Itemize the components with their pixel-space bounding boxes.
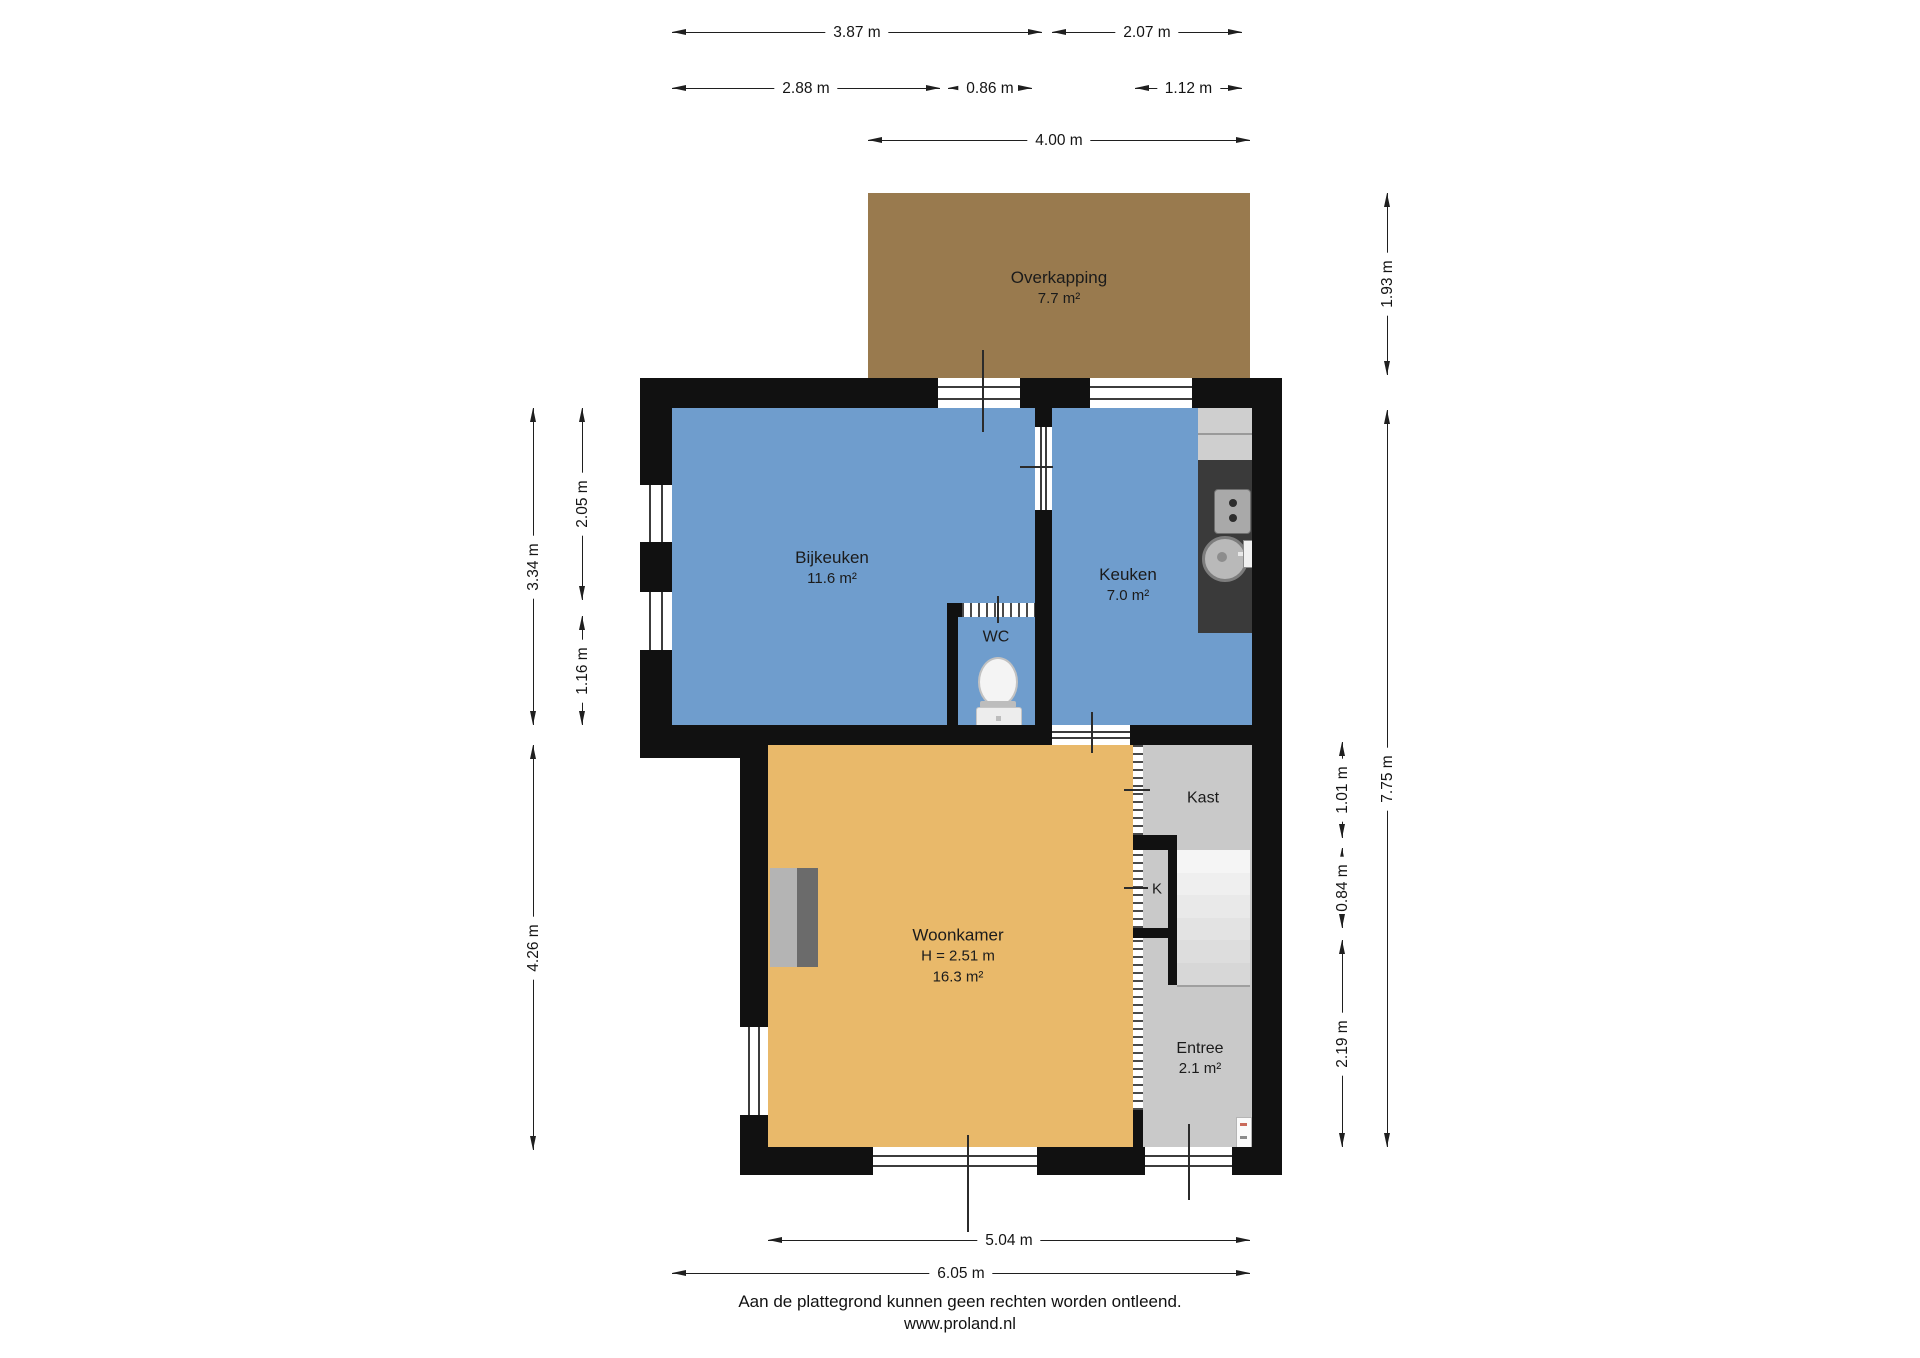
label-bijkeuken: Bijkeuken 11.6 m²	[795, 547, 869, 589]
wc-name: WC	[983, 627, 1010, 648]
disclaimer-text: Aan de plattegrond kunnen geen rechten w…	[0, 1292, 1920, 1312]
kast-name: Kast	[1187, 788, 1219, 809]
back-door-line	[982, 350, 984, 432]
entree-area: 2.1 m²	[1176, 1059, 1223, 1079]
dimension-d6: 4.00 m	[868, 140, 1250, 141]
label-entree: Entree 2.1 m²	[1176, 1039, 1223, 1079]
keuken-name: Keuken	[1099, 564, 1157, 585]
wall-left-upper	[640, 378, 672, 758]
dimension-d2: 2.07 m	[1052, 32, 1242, 33]
front-door-line	[1188, 1124, 1190, 1200]
keuken-area: 7.0 m²	[1099, 585, 1157, 606]
entree-partition-panel	[1133, 938, 1143, 1110]
website-link: www.proland.nl	[0, 1315, 1920, 1334]
bijkeuken-name: Bijkeuken	[795, 547, 869, 568]
wall-wc-top-stub	[947, 603, 962, 617]
dimension-label: 1.12 m	[1157, 80, 1220, 98]
back-door-opening	[938, 378, 1020, 408]
stair-tread	[1177, 873, 1250, 898]
k-door-line	[1124, 887, 1148, 889]
wc-door-line	[997, 596, 999, 623]
dimension-d17: 6.05 m	[672, 1273, 1250, 1274]
dimension-d5: 1.12 m	[1135, 88, 1242, 89]
bijkeuken-left-window-1	[640, 485, 672, 542]
kitchen-counter-top-icon	[1198, 408, 1252, 462]
dimension-d1: 3.87 m	[672, 32, 1042, 33]
stair-tread	[1177, 850, 1250, 875]
dimension-label: 4.00 m	[1027, 132, 1090, 150]
dimension-label: 0.86 m	[958, 80, 1021, 98]
woonkamer-bottom-window	[873, 1147, 1037, 1175]
stair-tread	[1177, 895, 1250, 920]
bijkeuken-area: 11.6 m²	[795, 568, 869, 589]
dimension-label: 7.75 m	[1379, 747, 1397, 810]
fireplace-front-icon	[797, 868, 818, 967]
wall-right	[1252, 378, 1282, 1175]
dimension-d15: 2.19 m	[1342, 940, 1343, 1147]
label-k: K	[1152, 879, 1162, 900]
bijkeuken-left-window-2	[640, 592, 672, 650]
dimension-d4: 0.86 m	[948, 88, 1032, 89]
dimension-label: 4.26 m	[525, 916, 543, 979]
doorbell-icon	[1236, 1117, 1252, 1149]
label-overkapping: Overkapping 7.7 m²	[1011, 267, 1107, 309]
stair-tread	[1177, 918, 1250, 943]
glass-door-bijkeuken-keuken	[1035, 427, 1052, 510]
floorplan-canvas: Overkapping 7.7 m² Bijkeuken 11.6 m² Keu…	[0, 0, 1920, 1358]
dimension-d16: 5.04 m	[768, 1240, 1250, 1241]
dimension-label: 2.05 m	[574, 472, 592, 535]
label-wc: WC	[983, 627, 1010, 648]
wall-entree-left-stub	[1133, 1110, 1143, 1147]
kast-door-line	[1124, 789, 1150, 791]
staircase	[1177, 850, 1250, 985]
stove-icon	[1214, 489, 1251, 534]
glass-door-line	[1020, 466, 1053, 468]
stair-tread	[1177, 940, 1250, 965]
garden-door-line	[967, 1135, 969, 1232]
label-woonkamer: Woonkamer H = 2.51 m 16.3 m²	[912, 925, 1003, 988]
label-kast: Kast	[1187, 788, 1219, 809]
entree-name: Entree	[1176, 1039, 1223, 1059]
wall-stairs-side	[1168, 850, 1177, 985]
dimension-d3: 2.88 m	[672, 88, 940, 89]
dimension-d7: 3.34 m	[533, 408, 534, 725]
dimension-d10: 4.26 m	[533, 745, 534, 1150]
fireplace-icon	[770, 868, 797, 967]
overkapping-name: Overkapping	[1011, 267, 1107, 288]
dimension-label: 2.19 m	[1334, 1012, 1352, 1075]
dimension-label: 3.34 m	[525, 535, 543, 598]
dimension-label: 2.07 m	[1115, 24, 1178, 42]
dimension-label: 6.05 m	[929, 1265, 992, 1283]
woonkamer-height: H = 2.51 m	[912, 946, 1003, 967]
wall-k-entree-divider	[1133, 928, 1168, 938]
woonkamer-name: Woonkamer	[912, 925, 1003, 946]
dimension-d8: 2.05 m	[582, 408, 583, 600]
dimension-label: 1.93 m	[1379, 252, 1397, 315]
wall-kast-divider	[1133, 835, 1177, 850]
overkapping-area: 7.7 m²	[1011, 288, 1107, 309]
sink-icon	[1202, 536, 1248, 582]
keuken-window-line	[1091, 712, 1093, 753]
woonkamer-left-window	[740, 1027, 768, 1115]
keuken-top-window	[1090, 378, 1192, 408]
k-front-panel	[1133, 850, 1143, 928]
dimension-label: 1.01 m	[1334, 758, 1352, 821]
dimension-label: 2.88 m	[774, 80, 837, 98]
dimension-label: 3.87 m	[825, 24, 888, 42]
wall-wc-left	[947, 603, 958, 745]
woonkamer-area: 16.3 m²	[912, 967, 1003, 988]
label-keuken: Keuken 7.0 m²	[1099, 564, 1157, 606]
dimension-d13: 1.01 m	[1342, 742, 1343, 838]
dimension-d11: 1.93 m	[1387, 193, 1388, 375]
stair-tread	[1177, 963, 1250, 988]
dimension-d12: 7.75 m	[1387, 410, 1388, 1147]
dimension-label: 1.16 m	[574, 639, 592, 702]
dimension-d14: 0.84 m	[1342, 848, 1343, 928]
dimension-d9: 1.16 m	[582, 616, 583, 725]
k-name: K	[1152, 879, 1162, 900]
dimension-label: 0.84 m	[1334, 856, 1352, 919]
dimension-label: 5.04 m	[977, 1232, 1040, 1250]
